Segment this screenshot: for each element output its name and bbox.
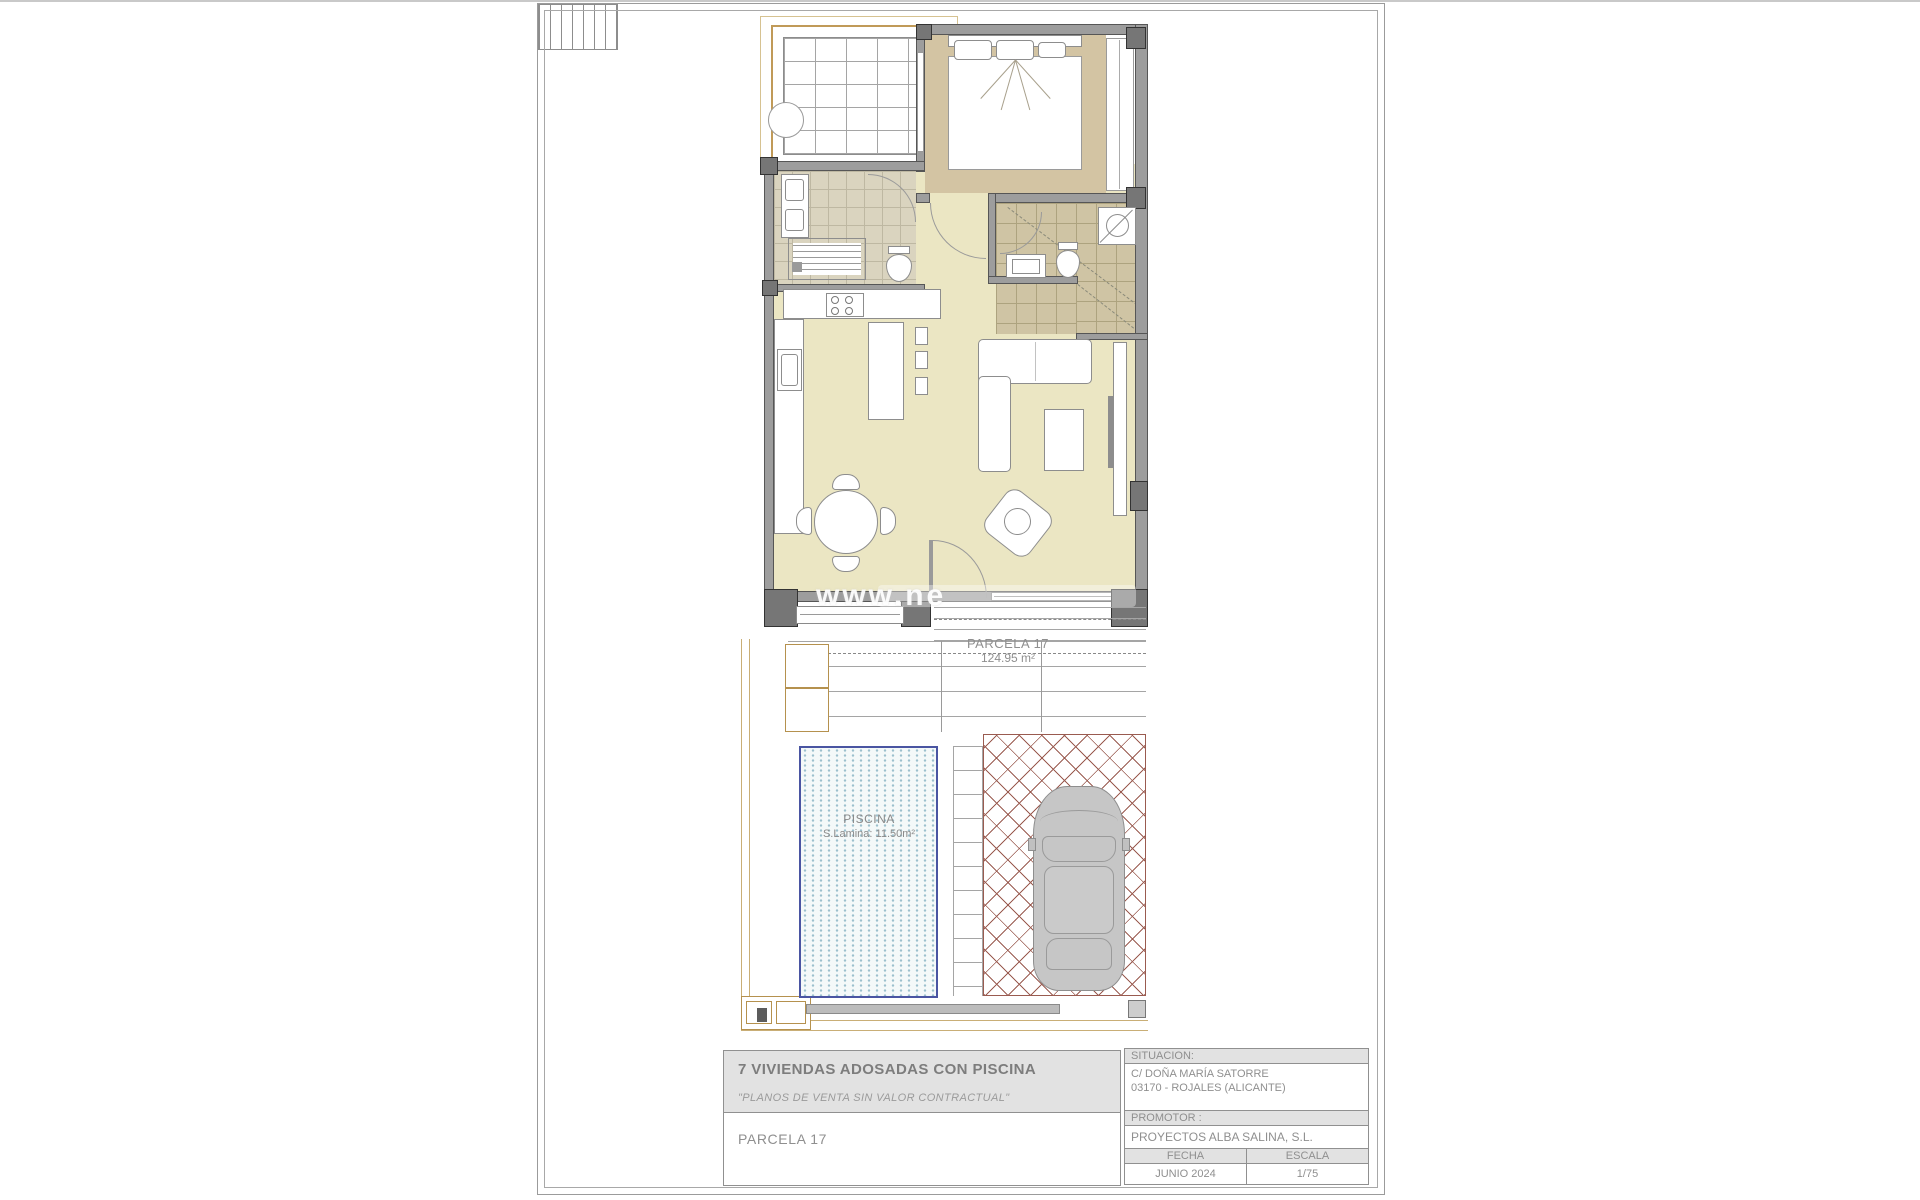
- car: [1033, 786, 1125, 991]
- title-block-left: 7 VIVIENDAS ADOSADAS CON PISCINA "PLANOS…: [723, 1050, 1121, 1186]
- sheet-name: PARCELA 17: [738, 1131, 1106, 1147]
- shower-left: [788, 238, 866, 280]
- kitchen-island: [868, 322, 904, 420]
- sink-bowl-1: [785, 179, 804, 201]
- hob-burner-2: [845, 296, 853, 304]
- dining-chair-west: [796, 507, 812, 535]
- address-line-1: C/ DOÑA MARÍA SATORRE: [1131, 1067, 1362, 1081]
- planter-box-2: [785, 688, 829, 732]
- car-mirror-left: [1028, 838, 1036, 851]
- parcel-label-area: 124.95 m²: [943, 651, 1073, 666]
- planter-box-1: [785, 644, 829, 688]
- fecha-label-cell: FECHA: [1125, 1149, 1247, 1164]
- situacion-label: SITUACION:: [1131, 1050, 1194, 1062]
- pool-label-name: PISCINA: [804, 812, 934, 827]
- pool-label-area: S.Lamina: 11.50m²: [804, 827, 934, 842]
- car-hood-line: [1040, 810, 1118, 833]
- fecha-value: JUNIO 2024: [1155, 1168, 1216, 1180]
- post-kitchen-w: [762, 280, 778, 296]
- coffee-table: [1044, 409, 1084, 471]
- shelf-3: [915, 377, 928, 395]
- tv-screen: [1108, 396, 1113, 468]
- wall-bedroom-bottom-a: [916, 193, 930, 203]
- wardrobe: [1106, 38, 1134, 191]
- fecha-value-cell: JUNIO 2024: [1125, 1164, 1247, 1184]
- entrance-gate-pillar: [757, 1008, 767, 1022]
- entrance-gate-cell-2: [776, 1001, 806, 1024]
- fecha-label: FECHA: [1167, 1150, 1204, 1162]
- bed-pillow-3: [1038, 42, 1066, 58]
- toilet-right-tank: [1058, 242, 1078, 250]
- wall-left: [764, 161, 774, 603]
- promotor-header: PROMOTOR :: [1125, 1111, 1368, 1126]
- escala-label-cell: ESCALA: [1247, 1149, 1368, 1164]
- escala-value-cell: 1/75: [1247, 1164, 1368, 1184]
- toilet-left-tank: [888, 246, 910, 254]
- vanity-right-sink: [1012, 259, 1040, 274]
- promotor-label: PROMOTOR :: [1131, 1112, 1202, 1124]
- staircase: [538, 4, 618, 50]
- parcel-label: PARCELA 17 124.95 m²: [943, 636, 1073, 666]
- title-block-right: SITUACION: C/ DOÑA MARÍA SATORRE 03170 -…: [1124, 1048, 1369, 1185]
- bed-pillow-2: [996, 40, 1034, 60]
- post-terrace-w: [760, 157, 778, 175]
- post-living-sw: [764, 589, 798, 627]
- wall-bath2-left: [988, 193, 996, 278]
- car-rear-window: [1046, 938, 1112, 970]
- bedroom-terrace-window: [917, 52, 924, 152]
- pool-label: PISCINA S.Lamina: 11.50m²: [804, 812, 934, 842]
- post-bedroom-se: [1126, 187, 1146, 209]
- porch-window-line: [800, 614, 900, 615]
- side-terrace-dashed-line: [934, 619, 1146, 620]
- address-line-2: 03170 - ROJALES (ALICANTE): [1131, 1081, 1362, 1095]
- terrace-planter-circle: [768, 102, 804, 138]
- car-roof: [1044, 866, 1114, 934]
- pool-side-band: [953, 746, 983, 996]
- post-bedroom-ne: [1126, 27, 1146, 49]
- disclaimer-text: "PLANOS DE VENTA SIN VALOR CONTRACTUAL": [738, 1092, 1106, 1104]
- wall-right: [1135, 24, 1148, 602]
- hob-burner-4: [845, 307, 853, 315]
- sofa-left-section: [978, 376, 1011, 472]
- post-bedroom-nw: [916, 24, 932, 40]
- bed-pillow-1: [954, 40, 992, 60]
- kitchen-sink-bowl: [781, 354, 798, 386]
- promotor-value: PROYECTOS ALBA SALINA, S.L.: [1131, 1130, 1313, 1144]
- fecha-escala-headers: FECHA ESCALA: [1125, 1149, 1368, 1164]
- sheet-name-cell: PARCELA 17: [724, 1113, 1120, 1165]
- plot-boundary-left: [741, 639, 750, 1029]
- promotor-body: PROYECTOS ALBA SALINA, S.L.: [1125, 1126, 1368, 1149]
- parcel-band-divider-1: [941, 641, 942, 732]
- bed-mattress: [948, 56, 1082, 170]
- hob-burner-3: [831, 307, 839, 315]
- sidewalk-strip: [806, 1004, 1060, 1014]
- post-living-e: [1130, 481, 1148, 511]
- tv-bench: [1113, 342, 1127, 516]
- sofa-cushion-line: [1035, 342, 1036, 381]
- escala-value: 1/75: [1297, 1168, 1318, 1180]
- swimming-pool: [799, 746, 938, 998]
- shelf-2: [915, 351, 928, 369]
- project-title: 7 VIVIENDAS ADOSADAS CON PISCINA: [738, 1061, 1106, 1078]
- parcel-label-name: PARCELA 17: [943, 636, 1073, 651]
- dining-table: [814, 490, 878, 554]
- situacion-body: C/ DOÑA MARÍA SATORRE 03170 - ROJALES (A…: [1125, 1064, 1368, 1111]
- wall-bedroom-top: [916, 24, 1144, 35]
- drawing-sheet: PARCELA 17 124.95 m² PISCINA S.Lamina: 1…: [537, 3, 1385, 1195]
- dining-chair-north: [832, 474, 860, 490]
- title-block-header: 7 VIVIENDAS ADOSADAS CON PISCINA "PLANOS…: [724, 1051, 1120, 1113]
- fecha-escala-values: JUNIO 2024 1/75: [1125, 1164, 1368, 1184]
- watermark: www.ne: [816, 579, 1138, 613]
- car-windshield: [1042, 836, 1116, 862]
- curb-square: [1128, 1000, 1146, 1018]
- situacion-header: SITUACION:: [1125, 1049, 1368, 1064]
- shelf-1: [915, 327, 928, 345]
- escala-label: ESCALA: [1286, 1150, 1329, 1162]
- wall-bedroom-bottom-b: [991, 193, 1145, 203]
- shower-drain: [792, 262, 802, 272]
- wardrobe-divider: [1119, 40, 1120, 189]
- car-mirror-right: [1122, 838, 1130, 851]
- hob-burner-1: [831, 296, 839, 304]
- image-top-border: [0, 0, 1920, 2]
- sink-bowl-2: [785, 209, 804, 231]
- wall-terrace-bath: [764, 161, 925, 171]
